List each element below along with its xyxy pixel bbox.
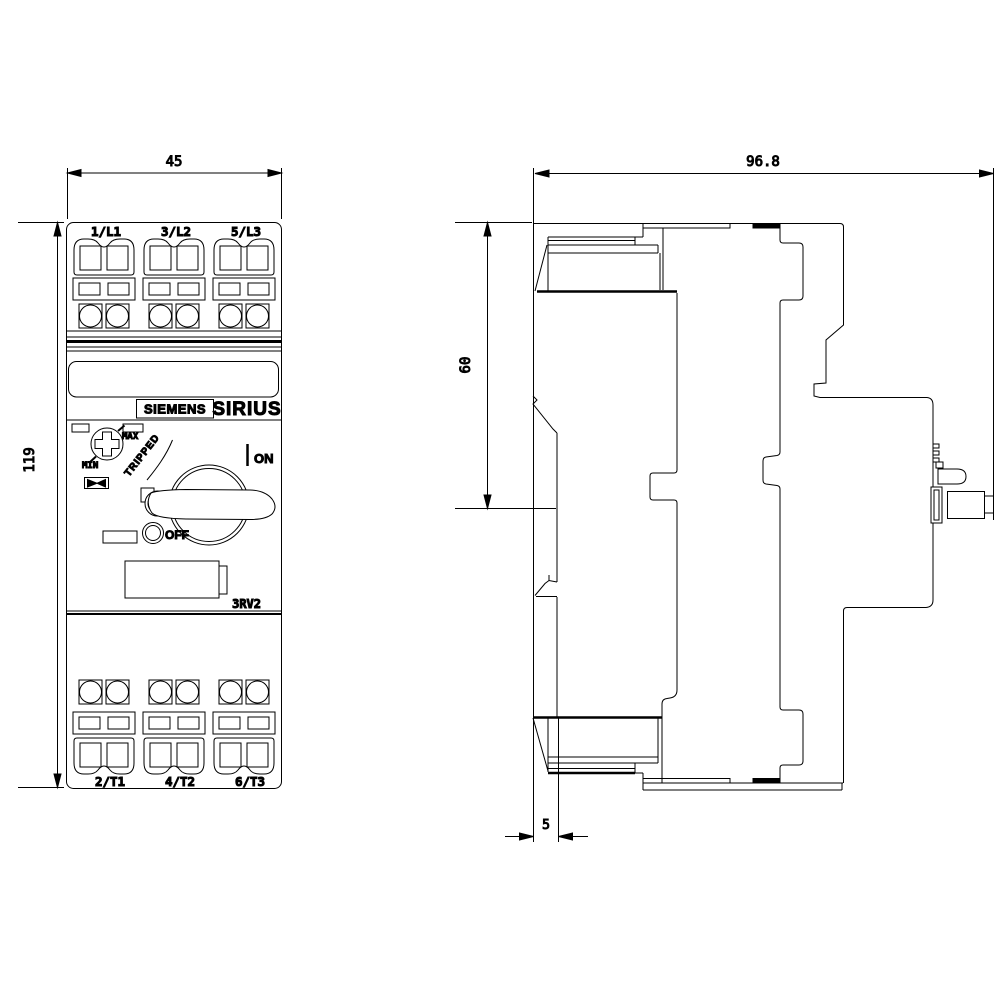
dial-min-label: MIN <box>82 461 98 471</box>
side-lower-terminal-block <box>533 718 662 774</box>
terminal-group <box>73 239 135 328</box>
side-upper-height-dim-label: 60 <box>458 357 474 374</box>
rotary-handle-lever <box>148 490 275 520</box>
on-label: ON <box>254 451 274 466</box>
terminal-label-4T2: 4/T2 <box>165 774 195 789</box>
terminal-group <box>143 680 205 774</box>
side-depth-dim-label: 96.8 <box>746 154 780 170</box>
side-upper-height-dimension: 60 <box>455 223 556 509</box>
side-upper-terminal-block <box>535 228 677 292</box>
terminal-group <box>213 680 275 774</box>
side-view: 96.8 60 5 <box>455 154 994 842</box>
side-central-column <box>650 227 803 783</box>
side-bottom-edge <box>643 773 843 790</box>
terminal-label-5L3: 5/L3 <box>231 224 261 239</box>
side-rotary-knob <box>931 444 994 523</box>
terminal-label-3L2: 3/L2 <box>161 224 191 239</box>
rotary-switch: ON OFF <box>103 444 275 545</box>
terminal-label-6T3: 6/T3 <box>235 774 265 789</box>
brand-row: SIEMENS SIRIUS <box>67 399 282 420</box>
dial-max-label: MAX <box>122 432 139 442</box>
front-height-dimension: 119 <box>18 223 64 788</box>
sirius-logo-text: SIRIUS <box>212 399 281 420</box>
front-height-dim-label: 119 <box>22 447 38 472</box>
rating-label-panel <box>69 362 279 398</box>
technical-drawing-page: 45 119 <box>0 0 1000 1000</box>
dial-knob-icon <box>91 428 123 460</box>
front-divider <box>67 611 282 614</box>
side-rail-offset-dimension: 5 <box>505 718 588 842</box>
front-width-dimension: 45 <box>68 154 282 219</box>
device-label-window: 3RV2 <box>125 561 261 611</box>
knob-block-side <box>948 492 985 519</box>
front-top-terminals: 1/L1 3/L2 5/L3 <box>73 224 275 328</box>
side-front-bezel <box>814 227 933 783</box>
siemens-logo-text: SIEMENS <box>144 402 206 417</box>
front-width-dim-label: 45 <box>166 154 183 170</box>
din-rail-clips <box>533 396 557 717</box>
front-bottom-terminals: 2/T1 4/T2 6/T3 <box>73 680 275 789</box>
off-label: OFF <box>165 528 189 542</box>
dimensional-drawing: 45 119 <box>0 0 1000 1000</box>
terminal-group <box>213 239 275 328</box>
front-grille-lines <box>67 331 282 351</box>
knob-grip-side <box>938 469 966 484</box>
dial-cross-slot-icon <box>95 432 119 456</box>
front-view: 45 119 <box>18 154 282 789</box>
terminal-group <box>143 239 205 328</box>
terminal-label-1L1: 1/L1 <box>91 224 121 239</box>
side-top-edge <box>534 224 844 229</box>
side-depth-dimension: 96.8 <box>534 154 994 842</box>
side-rail-offset-dim-label: 5 <box>542 818 550 833</box>
terminal-label-2T1: 2/T1 <box>95 774 125 789</box>
terminal-group <box>73 680 135 774</box>
model-label: 3RV2 <box>232 597 261 611</box>
